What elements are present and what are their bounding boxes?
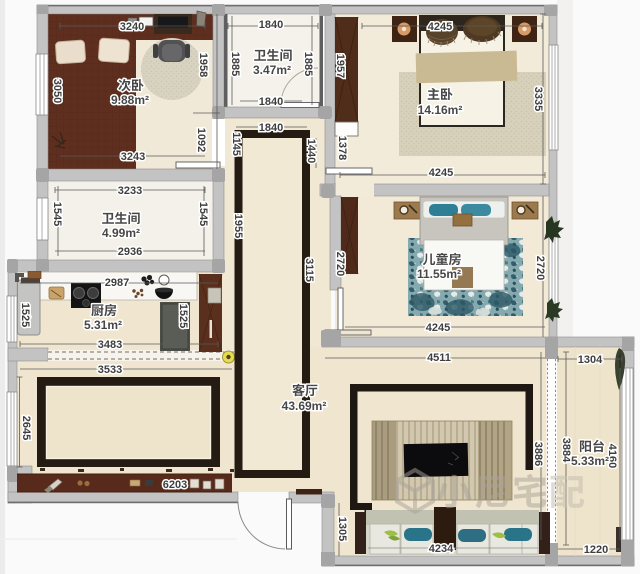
svg-text:1304: 1304 (578, 354, 603, 366)
svg-text:3243: 3243 (121, 151, 145, 163)
svg-text:1955: 1955 (232, 214, 244, 238)
svg-text:5.31m²: 5.31m² (84, 318, 122, 332)
svg-text:1545: 1545 (197, 202, 209, 226)
svg-text:5.33m²: 5.33m² (571, 454, 609, 468)
svg-text:3240: 3240 (120, 21, 144, 33)
svg-text:1378: 1378 (336, 136, 348, 160)
svg-text:1092: 1092 (195, 128, 207, 152)
svg-text:4245: 4245 (429, 167, 453, 179)
svg-text:1305: 1305 (336, 517, 348, 541)
svg-text:1525: 1525 (19, 303, 31, 327)
svg-text:6203: 6203 (163, 479, 187, 491)
svg-text:14.16m²: 14.16m² (418, 103, 463, 117)
svg-text:2720: 2720 (334, 252, 346, 276)
svg-text:2987: 2987 (105, 277, 129, 289)
svg-text:1220: 1220 (584, 544, 608, 556)
svg-text:3115: 3115 (303, 258, 315, 282)
svg-text:3483: 3483 (98, 339, 122, 351)
svg-text:1957: 1957 (334, 54, 346, 78)
svg-text:1840: 1840 (259, 96, 283, 108)
svg-text:3233: 3233 (118, 185, 142, 197)
svg-text:1440: 1440 (305, 139, 317, 163)
svg-text:1840: 1840 (259, 122, 283, 134)
svg-text:43.69m²: 43.69m² (282, 399, 327, 413)
svg-text:1885: 1885 (302, 52, 314, 76)
svg-text:4.99m²: 4.99m² (102, 226, 140, 240)
svg-text:4245: 4245 (428, 21, 452, 33)
svg-text:4511: 4511 (427, 352, 451, 364)
svg-text:3.47m²: 3.47m² (253, 63, 291, 77)
svg-text:1840: 1840 (259, 19, 283, 31)
svg-text:3533: 3533 (98, 364, 122, 376)
svg-text:2720: 2720 (534, 256, 546, 280)
svg-text:3886: 3886 (532, 442, 544, 466)
svg-text:3050: 3050 (51, 79, 63, 103)
svg-text:9.88m²: 9.88m² (111, 93, 149, 107)
svg-text:1525: 1525 (177, 304, 189, 328)
svg-text:2645: 2645 (20, 416, 32, 440)
svg-text:11.55m²: 11.55m² (417, 267, 461, 281)
svg-text:4245: 4245 (426, 322, 450, 334)
svg-text:2936: 2936 (118, 246, 142, 258)
svg-text:1885: 1885 (229, 52, 241, 76)
svg-text:3335: 3335 (532, 87, 544, 111)
svg-text:4234: 4234 (429, 543, 454, 555)
svg-text:1958: 1958 (197, 53, 209, 77)
svg-text:1545: 1545 (51, 202, 63, 226)
svg-text:1145: 1145 (230, 132, 242, 156)
